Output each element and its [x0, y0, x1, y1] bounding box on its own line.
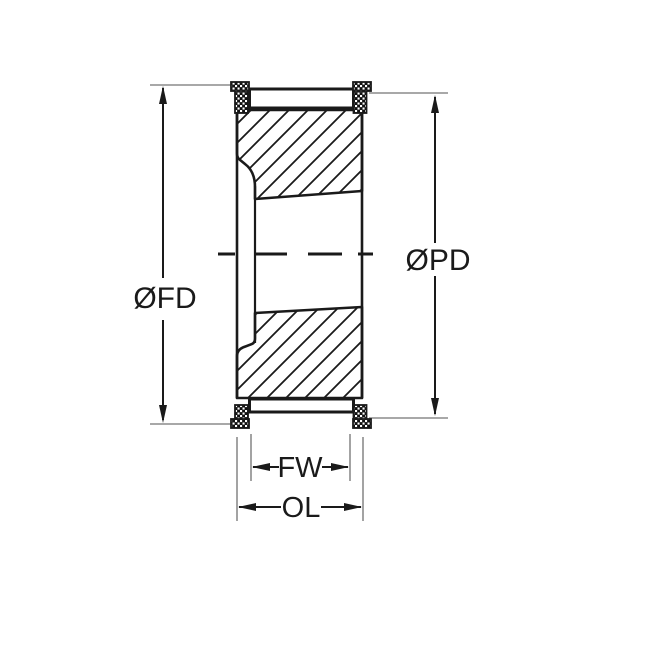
- fd-label: ØFD: [133, 282, 196, 315]
- pulley-technical-drawing: ØFD ØPD FW OL: [0, 0, 670, 670]
- pd-label: ØPD: [405, 244, 470, 277]
- belt-rim-top: [250, 89, 354, 108]
- belt-rim-bottom: [250, 399, 354, 412]
- drawing-canvas: ØFD ØPD FW OL: [0, 0, 670, 670]
- hatched-section-upper: [237, 110, 362, 199]
- fw-label: FW: [277, 452, 323, 484]
- ol-label: OL: [282, 492, 321, 524]
